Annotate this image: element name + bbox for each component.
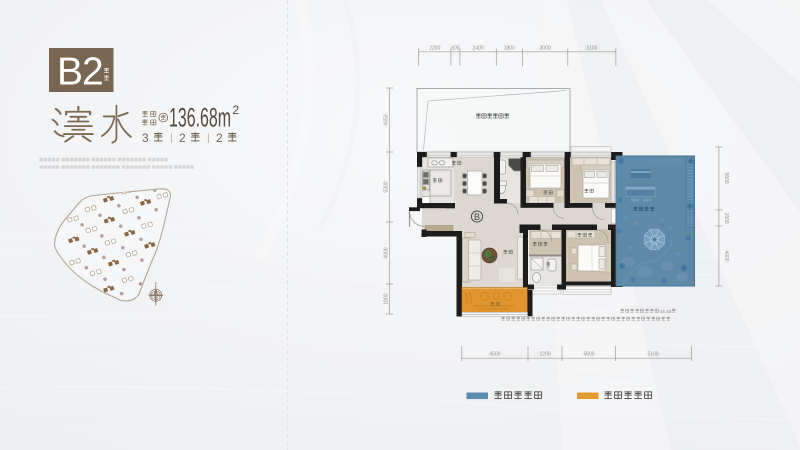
svg-text:B: B [474, 212, 480, 222]
svg-text:600: 600 [451, 46, 460, 52]
svg-text:2: 2 [216, 131, 223, 145]
svg-text:5300: 5300 [384, 181, 390, 192]
svg-text:4650: 4650 [384, 114, 390, 125]
svg-text:5100: 5100 [647, 352, 658, 358]
svg-text:5600: 5600 [583, 352, 594, 358]
svg-text:3000: 3000 [540, 46, 551, 52]
svg-text:4000: 4000 [384, 247, 390, 258]
svg-text:2: 2 [179, 131, 186, 145]
svg-text:5500: 5500 [723, 172, 729, 183]
svg-text:3100: 3100 [586, 46, 597, 52]
svg-text:3: 3 [142, 131, 149, 145]
svg-text:2200: 2200 [539, 352, 550, 358]
svg-text:B2: B2 [57, 51, 103, 94]
svg-text:2200: 2200 [429, 46, 440, 52]
svg-text:2400: 2400 [473, 46, 484, 52]
svg-text:1800: 1800 [504, 46, 515, 52]
svg-text:4500: 4500 [489, 352, 500, 358]
svg-text:1500: 1500 [723, 212, 729, 223]
svg-text:44.45: 44.45 [660, 309, 672, 315]
svg-text:4000: 4000 [723, 250, 729, 261]
svg-text:136.68m: 136.68m [169, 103, 231, 133]
svg-text:2: 2 [233, 103, 240, 117]
svg-text:1800: 1800 [384, 293, 390, 304]
svg-text:|: | [170, 132, 173, 144]
svg-text:|: | [207, 132, 210, 144]
